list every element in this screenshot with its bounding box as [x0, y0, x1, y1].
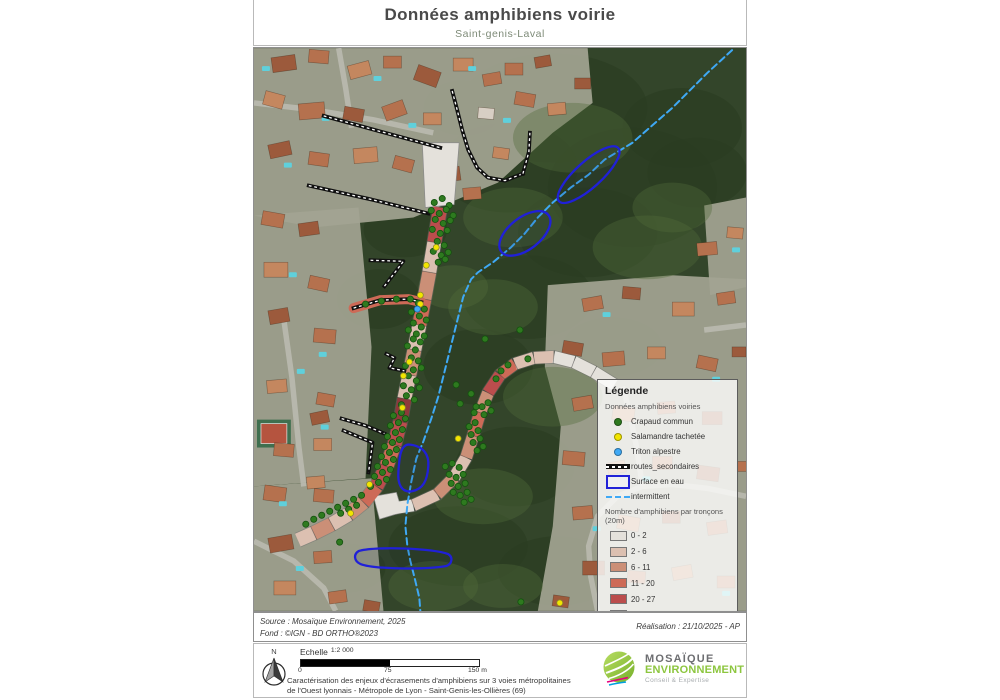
class-swatch-icon: [610, 562, 627, 572]
scale-label: Echelle1:2 000: [300, 647, 354, 657]
species-dot-icon: [614, 448, 622, 456]
legend-class-rows: 0 - 22 - 66 - 1111 - 2020 - 2727 - 58: [605, 528, 730, 612]
legend-line-0: routes_secondaires: [605, 459, 730, 474]
legend-species-1: Salamandre tachetée: [605, 429, 730, 444]
legend-title: Légende: [605, 385, 730, 397]
logo-globe-icon: [599, 649, 639, 689]
water-surface-symbol-icon: [606, 475, 630, 489]
scale-tick-150: 150 m: [468, 667, 487, 674]
railroad-symbol-icon: [606, 464, 630, 469]
source-line1: Source : Mosaïque Environnement, 2025: [260, 616, 405, 628]
scale-bar: [300, 659, 480, 667]
logo-tagline: Conseil & Expertise: [645, 678, 744, 685]
legend-class-4: 20 - 27: [605, 591, 730, 607]
legend-species-0: Crapaud commun: [605, 414, 730, 429]
scale-ratio: 1:2 000: [331, 647, 354, 654]
legend-section-classes: Nombre d'amphibiens par tronçons (20m): [605, 507, 730, 525]
realisation-text: Réalisation : 21/10/2025 - AP: [636, 622, 740, 631]
legend-class-0: 0 - 2: [605, 528, 730, 544]
legend-line-rows: routes_secondairesSurface en eauintermit…: [605, 459, 730, 504]
class-swatch-icon: [610, 594, 627, 604]
page-subtitle: Saint-genis-Laval: [254, 28, 746, 40]
legend-class-3: 11 - 20: [605, 575, 730, 591]
north-label: N: [271, 647, 276, 656]
legend-species-2: Triton alpestre: [605, 444, 730, 459]
source-strip: Source : Mosaïque Environnement, 2025 Fo…: [253, 612, 747, 642]
legend-line-2: intermittent: [605, 489, 730, 504]
legend-section-species: Données amphibiens voiries: [605, 402, 730, 411]
logo-name-2: ENVIRONNEMENT: [645, 665, 744, 677]
map-sheet: Données amphibiens voirie Saint-genis-La…: [0, 0, 1000, 700]
legend-class-2: 6 - 11: [605, 560, 730, 576]
footer-frame: N Echelle1:2 000 0 75 150 m Caractérisat…: [253, 643, 747, 698]
species-dot-icon: [614, 433, 622, 441]
class-swatch-icon: [610, 578, 627, 588]
dashed-stream-symbol-icon: [606, 496, 630, 498]
caption-line2: de l'Ouest lyonnais - Métropole de Lyon …: [287, 686, 526, 695]
map-legend: Légende Données amphibiens voiries Crapa…: [597, 379, 738, 612]
page-title: Données amphibiens voirie: [254, 5, 746, 25]
legend-species-rows: Crapaud communSalamandre tachetéeTriton …: [605, 414, 730, 459]
title-frame: Données amphibiens voirie Saint-genis-La…: [253, 0, 747, 46]
map-canvas[interactable]: Légende Données amphibiens voiries Crapa…: [253, 47, 747, 612]
company-logo: MOSAÏQUE ENVIRONNEMENT Conseil & Experti…: [599, 649, 744, 689]
scale-tick-0: 0: [298, 667, 302, 674]
map-caption: Caractérisation des enjeux d'écrasements…: [287, 676, 627, 696]
caption-line1: Caractérisation des enjeux d'écrasements…: [287, 676, 571, 685]
scale-tick-75: 75: [384, 667, 392, 674]
class-swatch-icon: [610, 547, 627, 557]
legend-line-1: Surface en eau: [605, 474, 730, 489]
class-swatch-icon: [610, 531, 627, 541]
source-text: Source : Mosaïque Environnement, 2025 Fo…: [260, 616, 405, 639]
source-line2: Fond : ©IGN - BD ORTHO®2023: [260, 628, 405, 640]
legend-class-1: 2 - 6: [605, 544, 730, 560]
species-dot-icon: [614, 418, 622, 426]
scale-ticks: 0 75 150 m: [254, 667, 534, 675]
